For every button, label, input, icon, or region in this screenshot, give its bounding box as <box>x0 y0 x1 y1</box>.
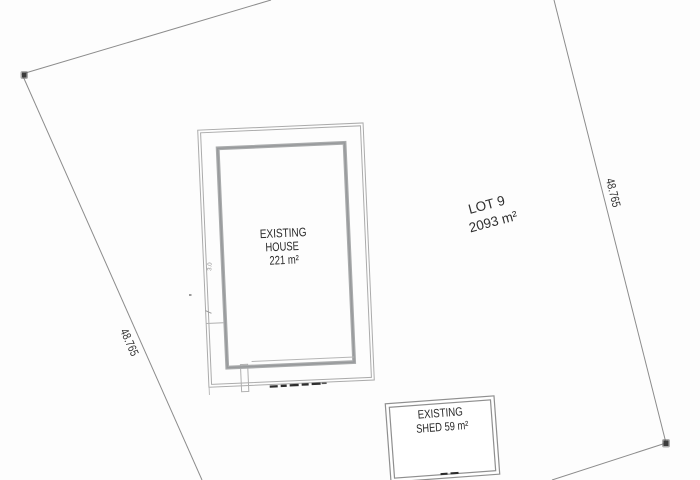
svg-text:3.0: 3.0 <box>207 262 213 271</box>
svg-text:221 m²: 221 m² <box>269 252 299 267</box>
